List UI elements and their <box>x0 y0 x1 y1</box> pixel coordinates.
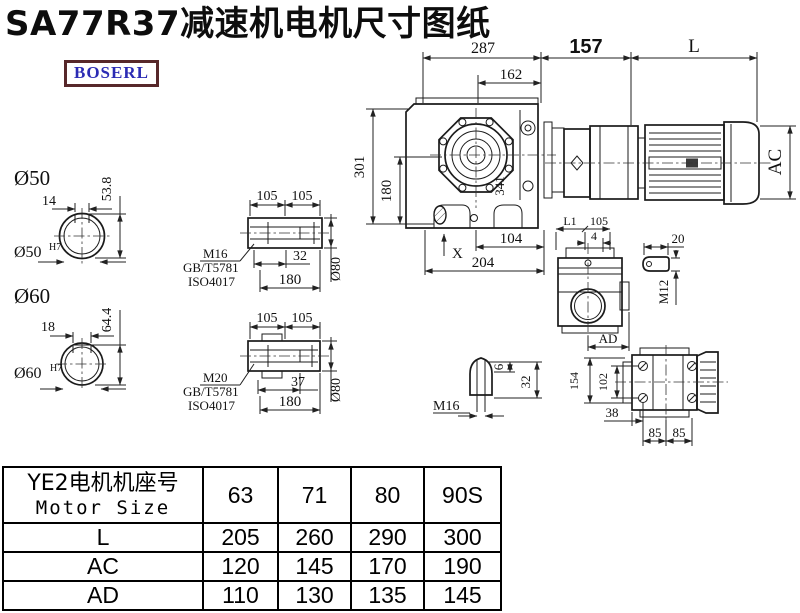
dim-105-a: 105 <box>257 189 278 204</box>
dim-105-c: 105 <box>257 311 278 326</box>
dim-154: 154 <box>567 372 581 390</box>
cell-AD-71: 130 <box>278 581 351 610</box>
dim-32-plug: 32 <box>518 376 533 389</box>
dim-38: 38 <box>606 405 619 420</box>
gearbox-dimensions: 301 180 X 104 204 <box>352 109 544 275</box>
dim-32: 32 <box>293 249 307 264</box>
gearbox-top-view: 154 102 38 85 85 <box>567 345 728 446</box>
dim-d80-sleeve2: Ø80 <box>329 378 344 402</box>
dim-180-vertical: 180 <box>379 180 395 203</box>
size-col-71: 71 <box>278 467 351 523</box>
dim-AD: AD <box>599 331 618 346</box>
cell-AC-63: 120 <box>203 552 278 581</box>
dim-18: 18 <box>41 320 55 335</box>
row-label-AC: AC <box>3 552 203 581</box>
dim-102: 102 <box>596 373 610 391</box>
dim-180-sleeve1: 180 <box>279 272 302 288</box>
dim-L: L <box>688 36 700 57</box>
table-row-AC: AC 120 145 170 190 <box>3 552 501 581</box>
dim-37: 37 <box>291 375 305 390</box>
eyebolt-view: 20 M12 <box>643 231 685 305</box>
label-d50-tol: H7 <box>49 242 61 253</box>
label-m20: M20 <box>203 370 228 385</box>
motor-size-header-en: Motor Size <box>4 496 202 520</box>
table-row-L: L 205 260 290 300 <box>3 523 501 552</box>
dim-341: 341 <box>492 176 507 196</box>
sleeve-detail-m20: 105 105 37 180 Ø80 M20 GB/T5781 ISO4017 <box>183 311 344 414</box>
label-d60: Ø60 <box>14 284 50 308</box>
gearbox-front-view: 341 <box>406 98 556 228</box>
cell-L-80: 290 <box>351 523 424 552</box>
label-d60h7: Ø60 <box>14 365 42 382</box>
plug-view: 6 32 M16 <box>433 358 542 416</box>
dim-180-sleeve2: 180 <box>279 394 302 410</box>
motor-side-view: AC <box>544 122 796 204</box>
cell-AC-80: 170 <box>351 552 424 581</box>
sleeve-detail-m16: 105 105 32 180 Ø80 M16 GB/T5781 ISO4017 <box>183 189 344 292</box>
dim-157: 157 <box>569 36 602 58</box>
label-iso-1: ISO4017 <box>188 274 235 289</box>
shaft-bore-60-view: Ø60 18 64.4 Ø60 H7 <box>14 284 126 390</box>
dim-85-a: 85 <box>649 425 662 440</box>
dim-287: 287 <box>471 40 495 57</box>
dim-105-b: 105 <box>292 189 313 204</box>
cell-AC-71: 145 <box>278 552 351 581</box>
label-d50h7: Ø50 <box>14 244 42 261</box>
dim-AC: AC <box>765 149 786 175</box>
dim-4: 4 <box>591 229 597 243</box>
dim-14: 14 <box>42 194 56 209</box>
size-col-90s: 90S <box>424 467 501 523</box>
label-gb-2: GB/T5781 <box>183 384 239 399</box>
row-label-L: L <box>3 523 203 552</box>
cell-AD-90s: 145 <box>424 581 501 610</box>
size-col-80: 80 <box>351 467 424 523</box>
cell-AD-80: 135 <box>351 581 424 610</box>
drawing-sheet: SA77R37减速机电机尺寸图纸 BOSERL 287 162 <box>0 0 800 613</box>
motor-size-header-cell: YE2电机机座号 Motor Size <box>3 467 203 523</box>
label-m16: M16 <box>203 246 228 261</box>
dim-85-b: 85 <box>673 425 686 440</box>
aux-gearbox-view: L1 105 4 AD <box>556 214 629 351</box>
dim-162: 162 <box>500 67 523 83</box>
dim-6: 6 <box>491 363 506 370</box>
dim-64-4: 64.4 <box>100 308 115 333</box>
label-m16-plug: M16 <box>433 399 459 414</box>
dim-204: 204 <box>472 255 495 271</box>
shaft-bore-50-view: Ø50 14 53.8 Ø50 H7 <box>14 166 126 264</box>
cell-AC-90s: 190 <box>424 552 501 581</box>
dim-301: 301 <box>352 156 368 179</box>
label-d60-tol: H7 <box>50 363 62 374</box>
dim-104: 104 <box>500 231 523 247</box>
dim-20: 20 <box>672 231 685 246</box>
dim-105-d: 105 <box>292 311 313 326</box>
motor-size-header-cn: YE2电机机座号 <box>4 471 202 496</box>
dim-d80-sleeve1: Ø80 <box>329 257 344 281</box>
label-d50: Ø50 <box>14 166 50 190</box>
dim-X: X <box>452 246 463 262</box>
label-iso-2: ISO4017 <box>188 398 235 413</box>
dim-105-aux: 105 <box>590 214 608 228</box>
top-dimensions: 287 162 157 L <box>423 36 757 125</box>
label-m12: M12 <box>656 280 671 305</box>
table-header-row: YE2电机机座号 Motor Size 63 71 80 90S <box>3 467 501 523</box>
label-gb-1: GB/T5781 <box>183 260 239 275</box>
motor-dimension-table: YE2电机机座号 Motor Size 63 71 80 90S L 205 2… <box>2 466 502 611</box>
table-row-AD: AD 110 130 135 145 <box>3 581 501 610</box>
dim-53-8: 53.8 <box>100 177 115 202</box>
cell-L-71: 260 <box>278 523 351 552</box>
dim-L1: L1 <box>563 214 576 228</box>
cell-L-63: 205 <box>203 523 278 552</box>
size-col-63: 63 <box>203 467 278 523</box>
cell-AD-63: 110 <box>203 581 278 610</box>
row-label-AD: AD <box>3 581 203 610</box>
cell-L-90s: 300 <box>424 523 501 552</box>
